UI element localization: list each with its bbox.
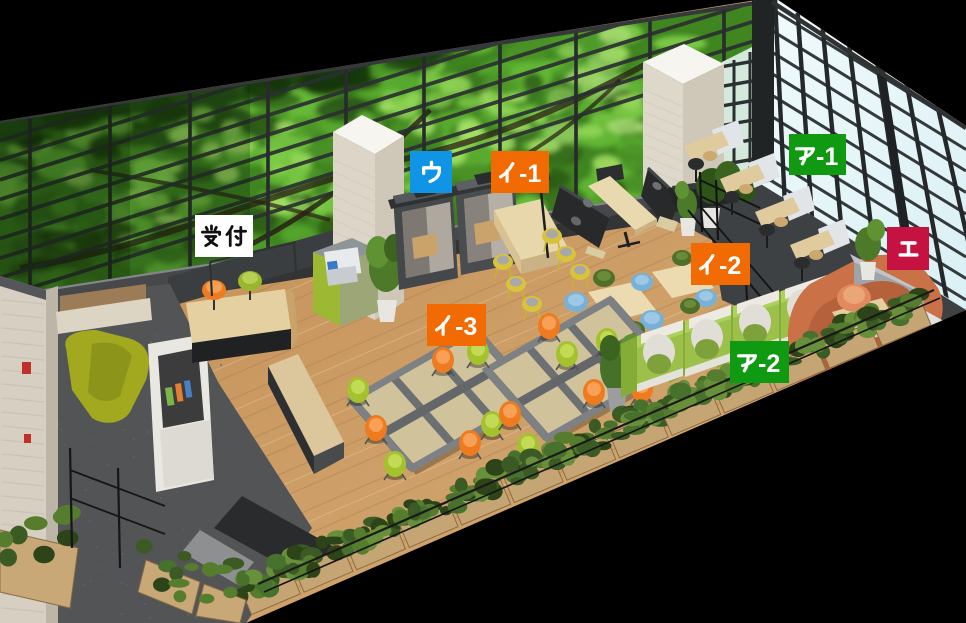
svg-text:-3: -3 [455,313,477,341]
svg-text:-1: -1 [519,160,541,188]
svg-text:-2: -2 [758,350,780,378]
svg-text:-2: -2 [719,252,741,280]
svg-text:-1: -1 [816,143,838,171]
